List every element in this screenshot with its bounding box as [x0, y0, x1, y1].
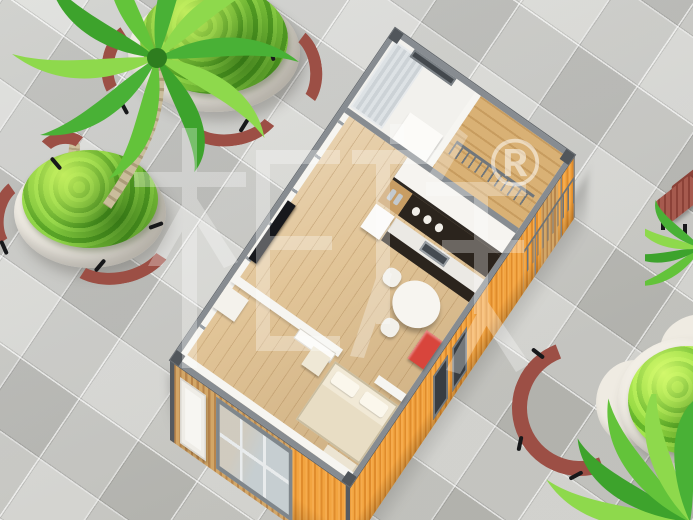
bench-leg — [661, 216, 665, 230]
dish — [422, 214, 434, 226]
bench-right-edge — [655, 172, 693, 244]
dish — [433, 222, 445, 234]
planter-bottom-right — [576, 316, 693, 491]
corner-post — [170, 360, 174, 443]
planter-top-center — [118, 0, 313, 137]
entry-door — [180, 377, 206, 461]
dish — [410, 205, 422, 217]
planter-left — [6, 140, 181, 285]
corner-post — [346, 484, 350, 520]
bench-leg — [683, 224, 687, 238]
scene-canvas: ® — [0, 0, 693, 520]
bench-seat — [654, 175, 693, 224]
